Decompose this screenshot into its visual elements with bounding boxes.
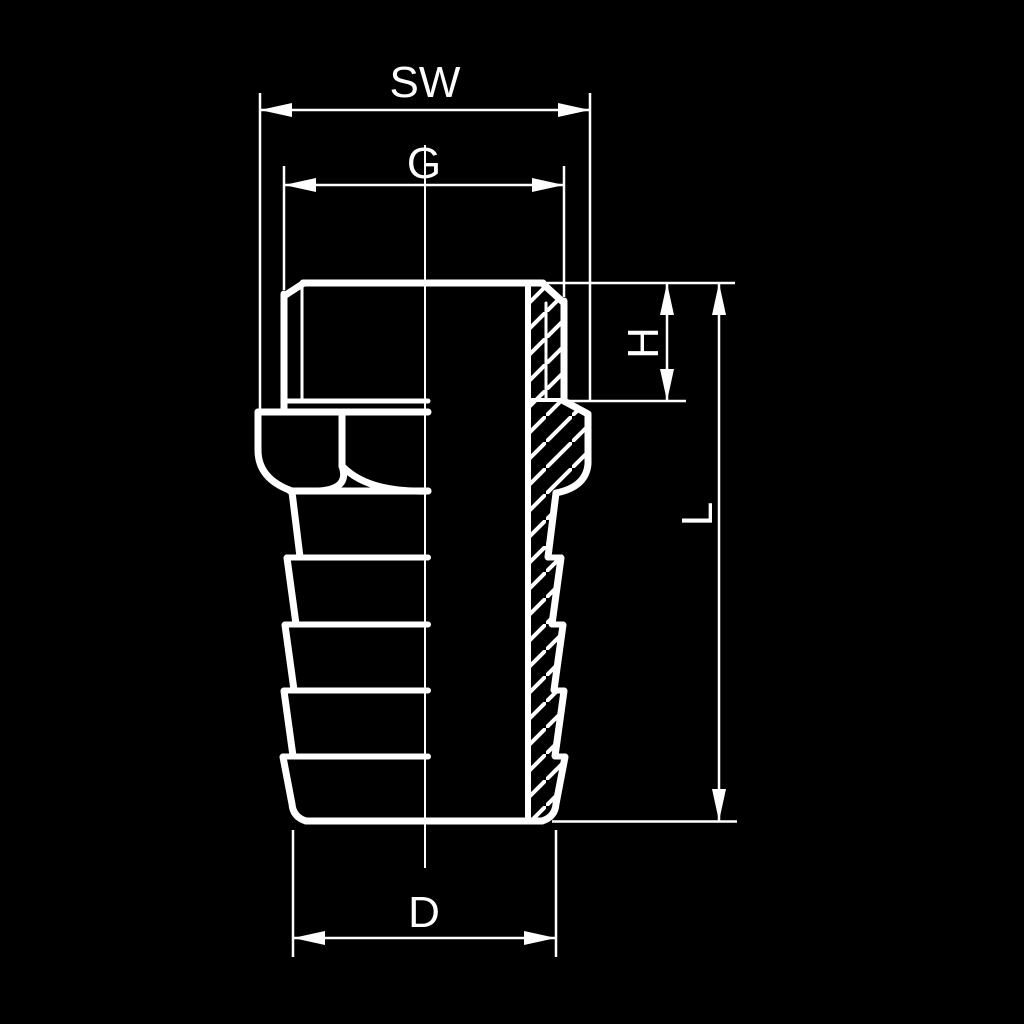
drawing-canvas: SW G H L D xyxy=(0,0,1024,1024)
g-arrow-left xyxy=(284,178,316,192)
fitting-technical-drawing: SW G H L D xyxy=(0,0,1024,1024)
d-arrow-left xyxy=(293,931,325,945)
dimension-l xyxy=(552,283,737,822)
hex-left-corner-arc xyxy=(258,412,292,491)
label-h: H xyxy=(619,327,668,359)
l-arrow-bottom xyxy=(712,789,726,821)
sw-arrow-left xyxy=(260,103,292,117)
h-arrow-bottom xyxy=(660,369,674,401)
g-arrow-right xyxy=(532,178,564,192)
h-arrow-top xyxy=(660,283,674,315)
dimensions xyxy=(260,93,737,957)
l-arrow-top xyxy=(712,283,726,315)
barb-profile-left xyxy=(283,492,306,821)
label-sw: SW xyxy=(390,58,461,107)
hex-face-arc-left xyxy=(319,466,344,491)
sw-arrow-right xyxy=(558,103,590,117)
d-arrow-right xyxy=(524,931,556,945)
label-g: G xyxy=(407,139,441,188)
label-d: D xyxy=(408,888,440,937)
barb-ridge-lines xyxy=(283,558,428,757)
hex-face-arc-right xyxy=(342,466,428,491)
label-l: L xyxy=(673,502,722,526)
